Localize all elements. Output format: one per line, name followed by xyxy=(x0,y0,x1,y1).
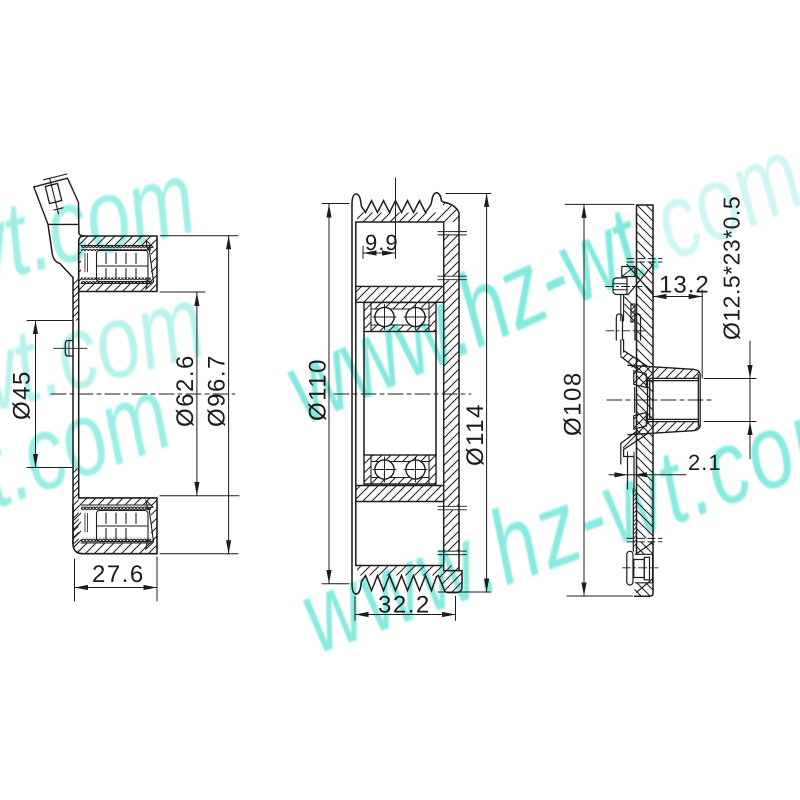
svg-text:Ø62.6: Ø62.6 xyxy=(172,354,199,427)
svg-text:2.1: 2.1 xyxy=(688,450,722,475)
svg-text:Ø108: Ø108 xyxy=(560,371,587,436)
svg-text:13.2: 13.2 xyxy=(659,272,710,299)
svg-text:9.9: 9.9 xyxy=(365,230,399,255)
svg-text:Ø12.5*23*0.5: Ø12.5*23*0.5 xyxy=(719,196,745,340)
svg-text:27.6: 27.6 xyxy=(92,561,145,588)
svg-text:Ø45: Ø45 xyxy=(9,370,36,420)
svg-text:32.2: 32.2 xyxy=(378,592,431,619)
svg-text:Ø96.7: Ø96.7 xyxy=(204,354,231,427)
svg-text:Ø110: Ø110 xyxy=(305,358,332,421)
svg-text:Ø114: Ø114 xyxy=(462,403,489,466)
